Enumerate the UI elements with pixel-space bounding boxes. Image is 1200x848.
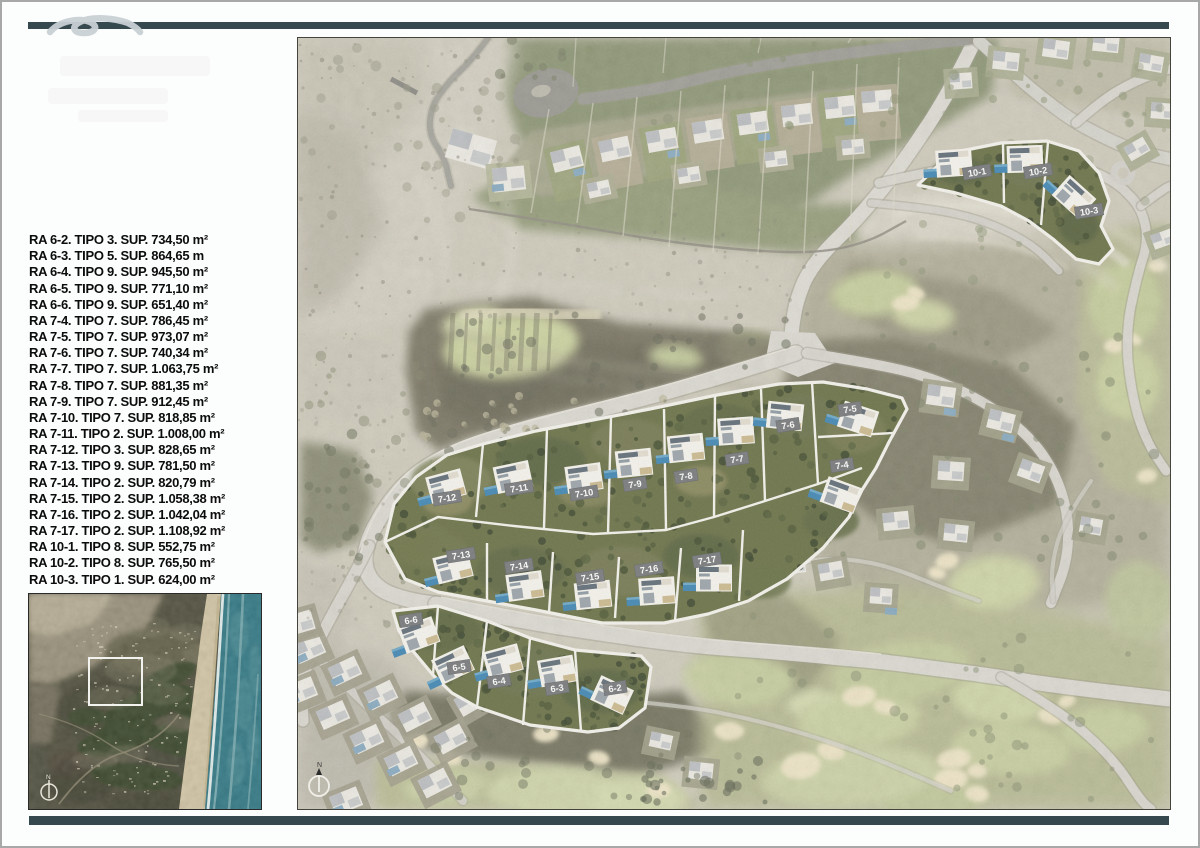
- svg-text:N: N: [317, 762, 322, 769]
- svg-text:N: N: [46, 774, 51, 781]
